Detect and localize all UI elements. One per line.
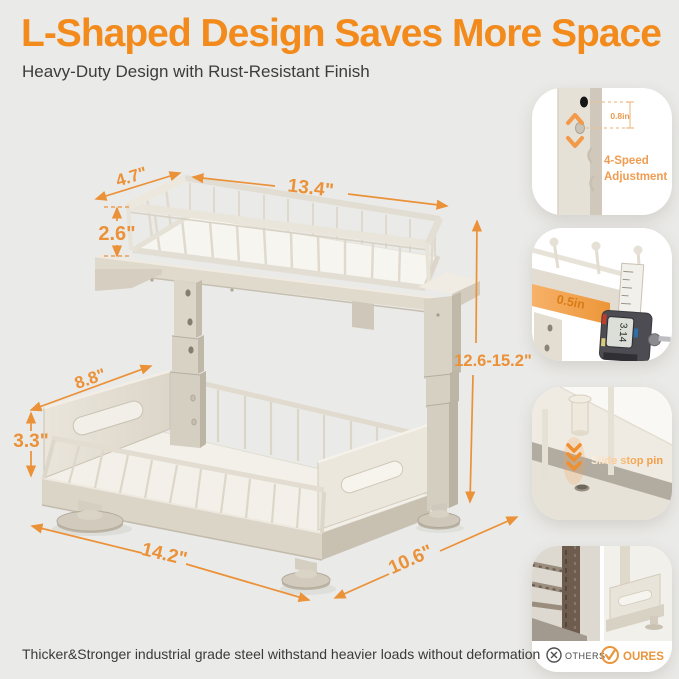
pin-label: Slide stop pin: [591, 455, 663, 467]
center-adjustable-post: [170, 280, 206, 448]
caliper-reading: 3.14: [616, 322, 628, 343]
comparison-illustration: OTHERS OURES: [532, 546, 672, 672]
dim-base-depth: 10.6": [385, 541, 436, 579]
stop-pin: [572, 399, 588, 433]
dim-panel-length: 8.8": [72, 365, 108, 393]
adjustment-label-line1: 4-Speed: [604, 155, 649, 167]
pin-hole-icon: [577, 485, 588, 490]
callout-comparison-card: OTHERS OURES: [532, 546, 672, 672]
digital-caliper: 3.14: [599, 262, 672, 361]
callout-thickness-card: 0.5in 3.14: [532, 228, 672, 361]
adjustment-label-line2: Adjustment: [604, 171, 667, 183]
dim-basket-height: 2.6": [98, 223, 135, 245]
callout-pin-card: Slide stop pin: [532, 387, 672, 520]
dim-line-height-top: [476, 221, 477, 343]
pin-illustration: Slide stop pin: [532, 387, 672, 520]
product-infographic: L-Shaped Design Saves More Space Heavy-D…: [0, 0, 679, 679]
hole-spacing-label: 0.8in: [610, 111, 629, 121]
callout-adjustment-card: 0.8in 4-Speed Adjustment: [532, 88, 672, 215]
dim-top-depth: 4.7": [113, 163, 149, 190]
footer-claim: Thicker&Stronger industrial grade steel …: [22, 646, 540, 662]
caliper-illustration: 0.5in 3.14: [532, 228, 672, 361]
tray-slide-bracket: [352, 301, 374, 330]
others-label: OTHERS: [565, 651, 606, 661]
adjustment-illustration: 0.8in 4-Speed Adjustment: [532, 88, 672, 215]
ours-label: OURES: [623, 651, 664, 663]
post-hole-icon: [580, 97, 588, 108]
dim-line-base-depth-left: [335, 574, 389, 598]
dim-line-height-bottom: [470, 375, 473, 502]
dim-panel-height: 3.3": [13, 431, 48, 452]
dim-height-range: 12.6-15.2": [454, 352, 532, 370]
dim-base-length: 14.2": [139, 539, 189, 570]
